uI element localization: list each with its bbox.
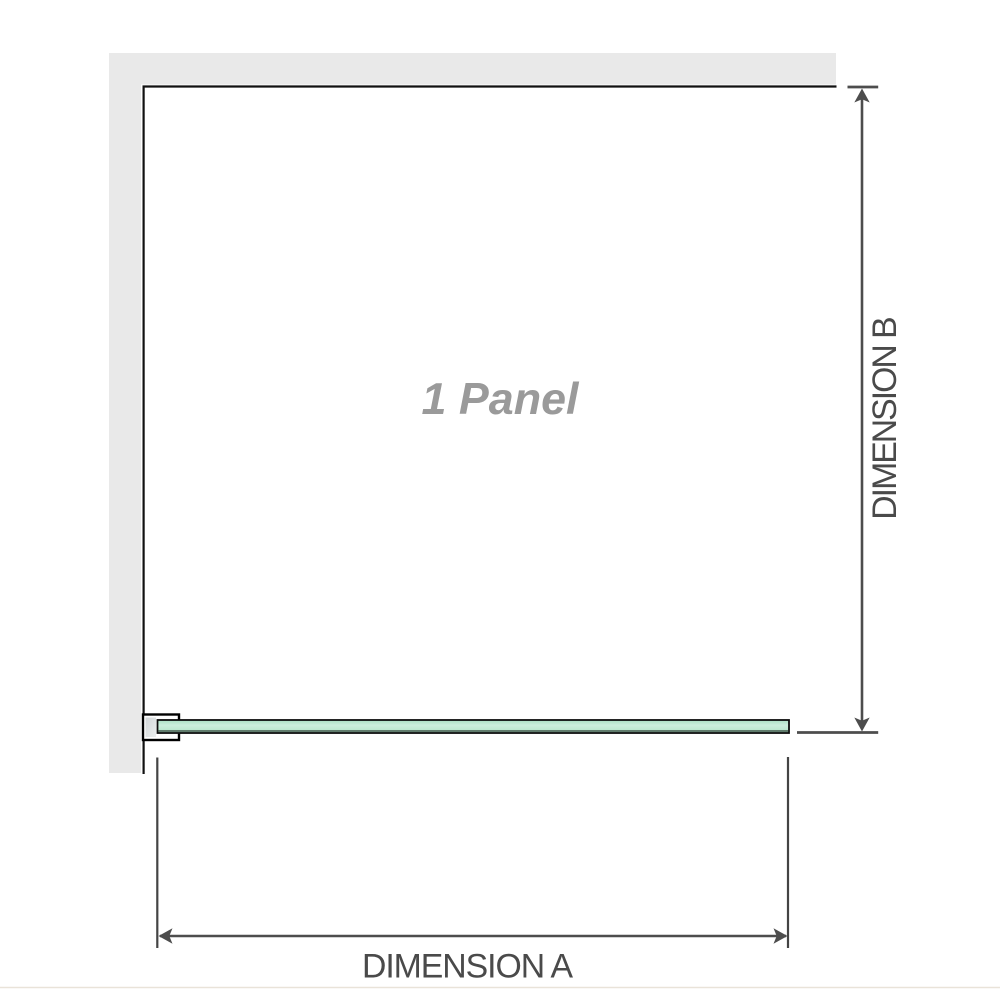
svg-text:DIMENSION A: DIMENSION A	[362, 947, 574, 985]
svg-text:1 Panel: 1 Panel	[422, 374, 580, 424]
svg-text:DIMENSION B: DIMENSION B	[866, 318, 904, 520]
